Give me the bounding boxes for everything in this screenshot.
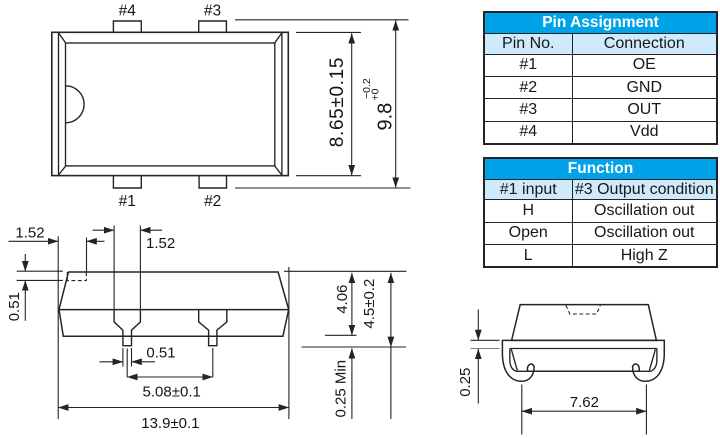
svg-text:#1: #1 (119, 193, 136, 210)
svg-text:4.06: 4.06 (334, 285, 351, 314)
svg-text:7.62: 7.62 (570, 394, 599, 411)
svg-text:5.08±0.1: 5.08±0.1 (143, 384, 201, 401)
svg-text:0.51: 0.51 (146, 345, 175, 362)
svg-text:1.52: 1.52 (15, 225, 44, 242)
svg-text:0.25: 0.25 (457, 368, 474, 397)
svg-text:1.52: 1.52 (146, 235, 175, 252)
svg-text:0.51: 0.51 (6, 292, 23, 321)
svg-text:13.9±0.1: 13.9±0.1 (141, 415, 199, 432)
svg-text:#3: #3 (204, 3, 221, 20)
svg-text:#2: #2 (204, 193, 221, 210)
svg-text:−0.2: −0.2 (361, 78, 373, 99)
svg-text:4.5±0.2: 4.5±0.2 (361, 279, 378, 329)
svg-text:8.65±0.15: 8.65±0.15 (327, 57, 348, 147)
svg-text:0.25 Min: 0.25 Min (333, 360, 350, 418)
svg-text:#4: #4 (119, 3, 137, 20)
svg-text:9.8: 9.8 (375, 103, 397, 131)
